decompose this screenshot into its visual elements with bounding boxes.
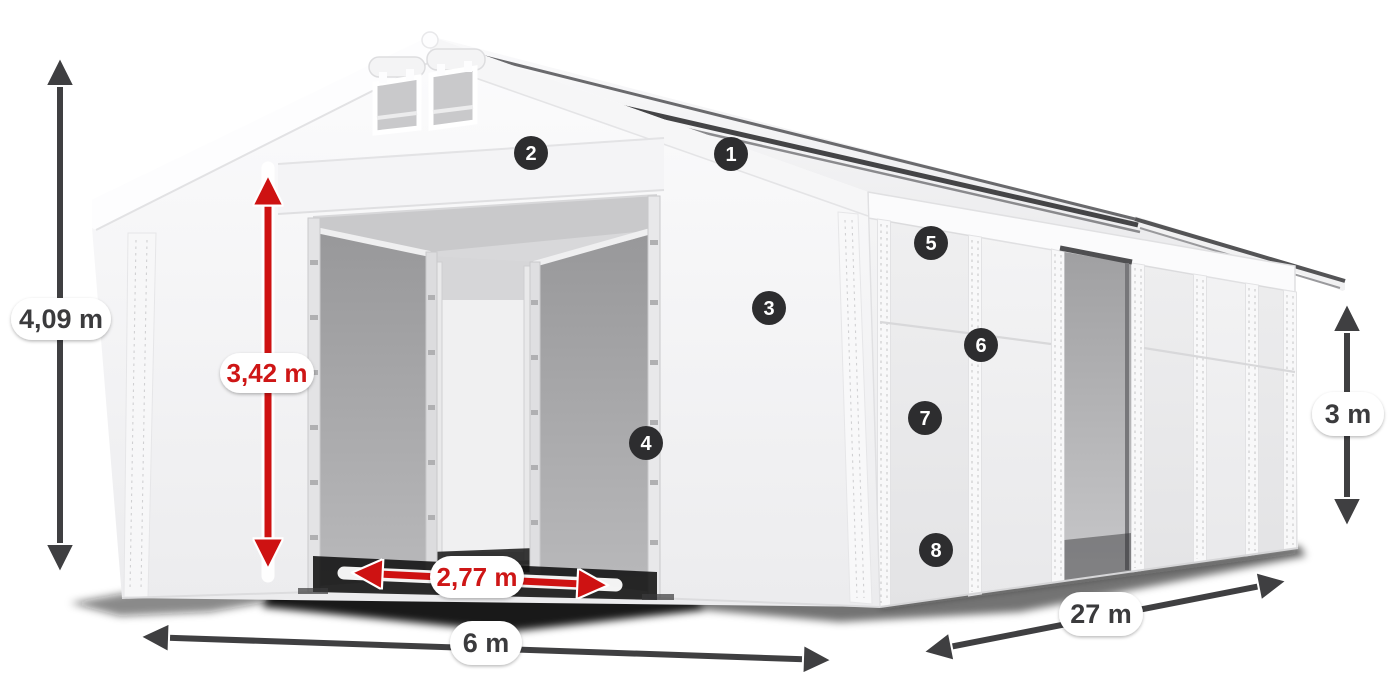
- badge-4-number: 4: [640, 433, 652, 455]
- badge-7-number: 7: [919, 408, 930, 430]
- badge-5: 5: [914, 226, 948, 260]
- badge-7: 7: [908, 401, 942, 435]
- rolled-flap: [369, 57, 425, 77]
- label-total-height: 4,09 m: [11, 298, 111, 340]
- badge-1: 1: [714, 137, 748, 171]
- label-tent-width: 6 m: [450, 621, 522, 665]
- badge-3-number: 3: [763, 298, 774, 320]
- label-tent-width-text: 6 m: [463, 628, 510, 658]
- badge-3: 3: [752, 291, 786, 325]
- label-total-height-text: 4,09 m: [19, 304, 103, 334]
- label-entrance-width: 2,77 m: [430, 556, 524, 598]
- label-entrance-height: 3,42 m: [220, 353, 314, 393]
- badge-8-number: 8: [930, 540, 941, 562]
- badge-1-number: 1: [725, 144, 736, 166]
- label-side-height-text: 3 m: [1325, 399, 1372, 429]
- badge-8: 8: [919, 533, 953, 567]
- badge-4: 4: [629, 426, 663, 460]
- badge-6: 6: [964, 328, 998, 362]
- through-view-far-opening: [430, 256, 536, 576]
- badge-2-number: 2: [525, 143, 536, 165]
- label-entrance-width-text: 2,77 m: [437, 562, 518, 592]
- label-tent-length: 27 m: [1059, 592, 1143, 636]
- diagram-canvas: 4,09 m 3,42 m 2,77 m 6 m 27 m 3 m 1: [0, 0, 1400, 700]
- interior-left-wall: [316, 232, 430, 586]
- badge-6-number: 6: [975, 335, 986, 357]
- badge-2: 2: [514, 136, 548, 170]
- label-tent-length-text: 27 m: [1070, 599, 1132, 629]
- ridge-cap: [422, 32, 438, 48]
- vent-window: [375, 77, 419, 133]
- vent-window: [431, 68, 475, 128]
- label-side-height: 3 m: [1312, 392, 1384, 436]
- front-entrance-opening: [298, 194, 674, 600]
- badge-5-number: 5: [925, 233, 936, 255]
- side-door-opening: [1060, 248, 1132, 581]
- interior-right-wall: [534, 234, 652, 592]
- tent-dimension-diagram: 4,09 m 3,42 m 2,77 m 6 m 27 m 3 m 1: [0, 0, 1400, 700]
- label-entrance-height-text: 3,42 m: [227, 358, 308, 388]
